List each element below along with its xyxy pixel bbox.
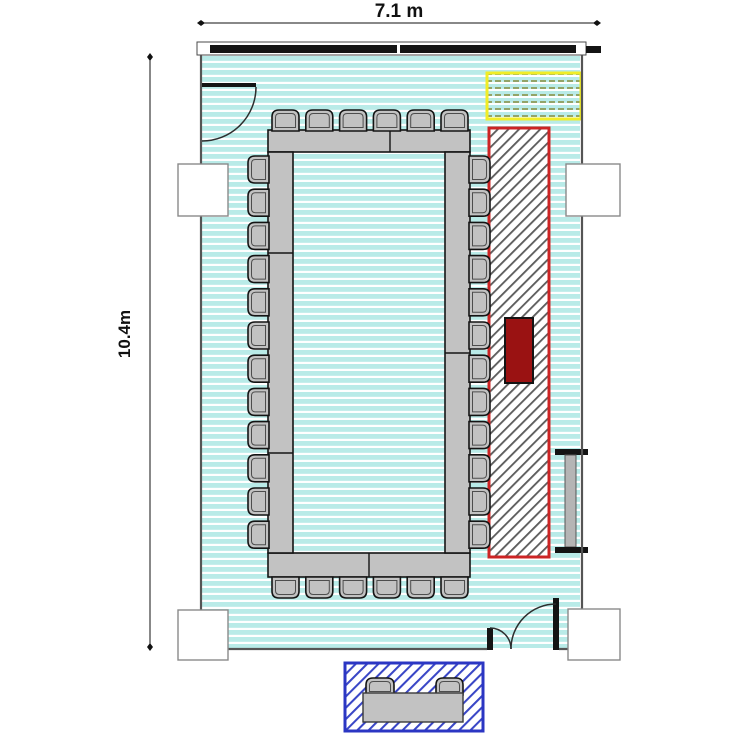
conference-chair — [272, 577, 299, 598]
wall-pillar-bottom-left — [178, 610, 228, 660]
blue-hatched-zone — [345, 663, 483, 731]
conference-chair — [469, 322, 490, 349]
conference-chair — [469, 289, 490, 316]
conference-chair — [248, 355, 269, 382]
conference-chair — [469, 156, 490, 183]
conference-chair — [469, 422, 490, 449]
conference-chair — [373, 577, 400, 598]
conference-chair — [248, 289, 269, 316]
conference-chair — [248, 488, 269, 515]
conference-chair — [441, 110, 468, 131]
conference-chair — [469, 222, 490, 249]
wall-pillar-left — [178, 164, 228, 216]
conference-chair — [407, 577, 434, 598]
conference-chair — [469, 256, 490, 283]
conference-chair — [306, 577, 333, 598]
conference-chair — [248, 422, 269, 449]
dimension-width: 7.1 m — [197, 1, 601, 26]
conference-chair — [340, 110, 367, 131]
door-jamb — [487, 628, 493, 650]
conference-chair — [469, 455, 490, 482]
conference-chair — [373, 110, 400, 131]
wall-pillar-right — [566, 164, 620, 216]
door-jamb — [553, 598, 559, 650]
conference-chair — [272, 110, 299, 131]
conference-chair — [248, 156, 269, 183]
conference-chair — [469, 355, 490, 382]
floor-plan-drawing: 7.1 m 10.4m — [0, 0, 750, 750]
conference-chair — [469, 521, 490, 548]
conference-chair — [469, 388, 490, 415]
conference-chair — [248, 455, 269, 482]
conference-chair — [248, 256, 269, 283]
floor-plan-canvas: 7.1 m 10.4m — [0, 0, 750, 750]
conference-chair — [248, 322, 269, 349]
conference-chair — [340, 577, 367, 598]
dimension-height: 10.4m — [115, 53, 153, 651]
wall-end-tick — [586, 46, 601, 53]
table-left-leg — [268, 152, 293, 553]
height-dimension-label: 10.4m — [115, 310, 134, 358]
reception-desk — [363, 693, 463, 722]
yellow-hatched-zone — [487, 73, 581, 119]
width-dimension-label: 7.1 m — [375, 1, 424, 22]
conference-chair — [306, 110, 333, 131]
wall-pillar-bottom-right — [568, 609, 620, 660]
window-mullion — [397, 45, 400, 53]
dark-red-box — [505, 318, 533, 383]
conference-chair — [441, 577, 468, 598]
conference-chair — [469, 189, 490, 216]
conference-chair — [248, 521, 269, 548]
conference-chair — [248, 189, 269, 216]
door-leaf — [202, 83, 256, 87]
table-top-band — [268, 130, 470, 152]
conference-chair — [407, 110, 434, 131]
conference-chair — [248, 222, 269, 249]
conference-chair — [469, 488, 490, 515]
top-wall-window — [197, 42, 601, 55]
conference-chair — [248, 388, 269, 415]
